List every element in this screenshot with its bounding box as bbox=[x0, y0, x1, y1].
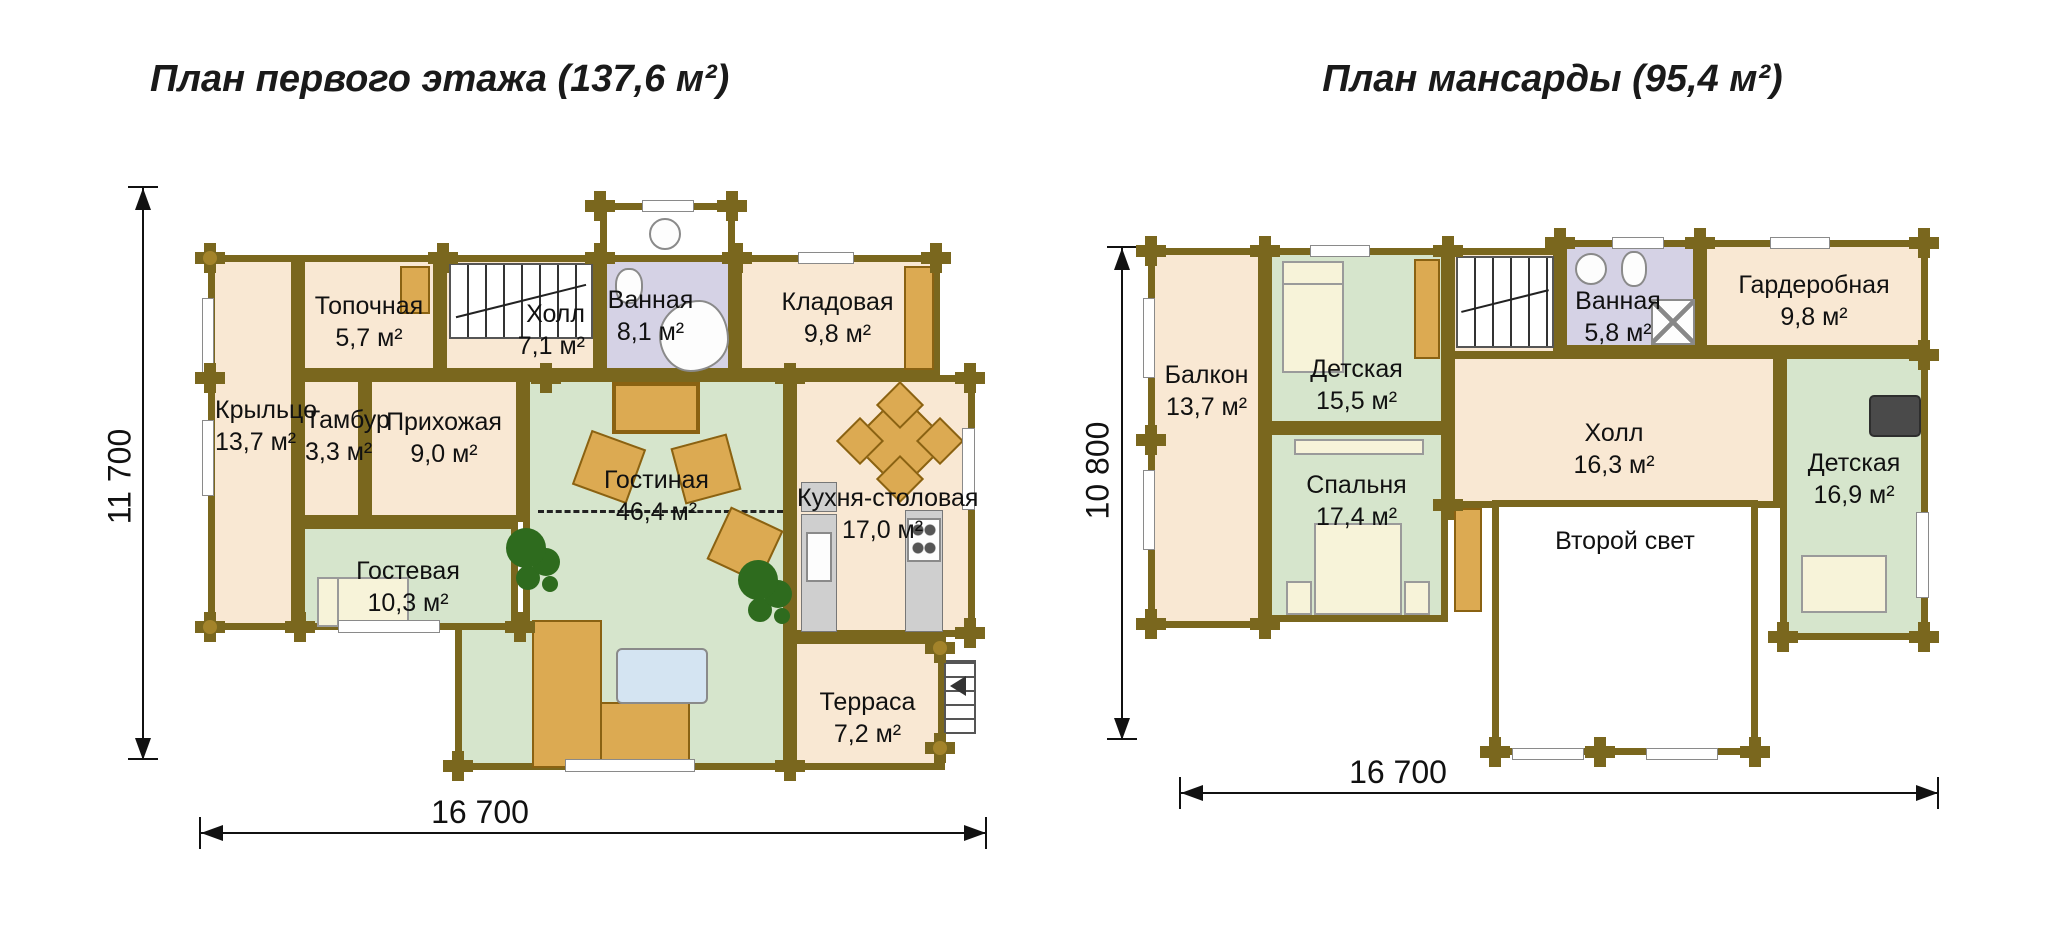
double-bed bbox=[1314, 523, 1402, 615]
room-vannaya-2: Ванная 5,8 м² bbox=[1560, 240, 1700, 352]
log-joint bbox=[1433, 236, 1463, 266]
log-joint bbox=[195, 612, 225, 642]
plant-icon bbox=[506, 528, 546, 568]
log-joint bbox=[717, 191, 747, 221]
height-dimension-label-right: 10 800 bbox=[1080, 411, 1117, 531]
log-joint bbox=[443, 751, 473, 781]
window bbox=[565, 759, 695, 772]
room-label-tambur: Тамбур 3,3 м² bbox=[305, 404, 358, 468]
log-joint bbox=[1909, 622, 1939, 652]
height-dimension-label-left: 11 700 bbox=[102, 417, 139, 537]
log-joint bbox=[1740, 737, 1770, 767]
log-joint bbox=[775, 751, 805, 781]
height-dimension-line-left bbox=[142, 188, 144, 760]
room-label-gostinaya: Гостиная 46,4 м² bbox=[530, 464, 783, 528]
plant-icon bbox=[738, 560, 778, 600]
log-joint bbox=[955, 618, 985, 648]
log-joint bbox=[1480, 737, 1510, 767]
log-joint bbox=[585, 243, 615, 273]
width-dimension-label-right: 16 700 bbox=[1318, 754, 1478, 791]
room-label-kryltso: Крыльцо 13,7 м² bbox=[215, 394, 291, 458]
room-label-vannaya-2: Ванная 5,8 м² bbox=[1567, 285, 1693, 349]
room-spalnya: Спальня 17,4 м² bbox=[1265, 428, 1448, 622]
wardrobe-strip bbox=[1414, 259, 1440, 359]
staircase-attic bbox=[1456, 256, 1554, 348]
height-dimension-line-right bbox=[1121, 248, 1123, 740]
washbasin-icon bbox=[649, 218, 681, 250]
room-label-topochnaya: Топочная 5,7 м² bbox=[305, 290, 433, 354]
dimension-arrow bbox=[1114, 248, 1130, 270]
room-label-detskaya-2: Детская 16,9 м² bbox=[1787, 447, 1921, 511]
fireplace bbox=[612, 382, 700, 434]
window bbox=[202, 420, 214, 496]
room-label-kuhnya: Кухня-столовая 17,0 м² bbox=[797, 482, 968, 546]
log-joint bbox=[1136, 425, 1166, 455]
room-vtoroy-svet: Второй свет bbox=[1492, 500, 1758, 755]
window bbox=[1143, 470, 1155, 550]
room-label-holl-1: Холл 7,1 м² bbox=[518, 298, 585, 362]
room-label-vannaya-1: Ванная 8,1 м² bbox=[607, 284, 728, 348]
width-dimension-line-left bbox=[200, 832, 986, 834]
log-joint bbox=[1909, 228, 1939, 258]
log-joint bbox=[195, 243, 225, 273]
log-joint bbox=[955, 363, 985, 393]
room-holl-2: Холл 16,3 м² bbox=[1448, 352, 1780, 508]
room-label-holl-2: Холл 16,3 м² bbox=[1455, 417, 1773, 481]
attic-plan: План мансарды (95,4 м²) Балкон 13,7 м² Д… bbox=[0, 0, 2061, 944]
stair-direction-line bbox=[1461, 289, 1549, 313]
log-joint bbox=[722, 243, 752, 273]
log-joint bbox=[775, 363, 805, 393]
window bbox=[1143, 298, 1155, 378]
room-label-kladovaya: Кладовая 9,8 м² bbox=[742, 286, 933, 350]
log-joint bbox=[195, 363, 225, 393]
room-label-detskaya-1: Детская 15,5 м² bbox=[1272, 353, 1441, 417]
room-label-garderobnaya: Гардеробная 9,8 м² bbox=[1707, 269, 1921, 333]
dimension-arrow bbox=[135, 188, 151, 210]
balcony-floor-strip bbox=[1454, 508, 1482, 612]
window bbox=[338, 620, 440, 633]
log-joint bbox=[1545, 228, 1575, 258]
log-joint bbox=[1909, 340, 1939, 370]
room-label-vtoroy-svet: Второй свет bbox=[1499, 525, 1751, 557]
steps-arrow-icon bbox=[950, 676, 966, 696]
width-dimension-line-right bbox=[1180, 792, 1938, 794]
log-joint bbox=[1685, 228, 1715, 258]
coffee-table bbox=[616, 648, 708, 704]
nightstand bbox=[1286, 581, 1312, 615]
log-joint bbox=[1250, 236, 1280, 266]
room-detskaya-2: Детская 16,9 м² bbox=[1780, 352, 1928, 640]
room-detskaya-1: Детская 15,5 м² bbox=[1265, 248, 1448, 428]
room-label-spalnya: Спальня 17,4 м² bbox=[1272, 469, 1441, 533]
window bbox=[1770, 237, 1830, 249]
room-garderobnaya: Гардеробная 9,8 м² bbox=[1700, 240, 1928, 352]
log-joint bbox=[531, 363, 561, 393]
terrace-steps bbox=[944, 660, 976, 734]
window bbox=[1916, 512, 1929, 598]
dimension-arrow bbox=[201, 825, 223, 841]
log-joint bbox=[925, 633, 955, 663]
washbasin-icon bbox=[1575, 253, 1607, 285]
dimension-arrow bbox=[1916, 785, 1938, 801]
window bbox=[1646, 748, 1718, 760]
window bbox=[1310, 245, 1370, 257]
dimension-arrow bbox=[1114, 718, 1130, 740]
dimension-arrow bbox=[135, 738, 151, 760]
window bbox=[1612, 237, 1664, 249]
nightstand bbox=[1404, 581, 1430, 615]
corner-sofa-horizontal bbox=[600, 702, 690, 766]
entrance-door bbox=[642, 200, 694, 212]
room-label-balkon: Балкон 13,7 м² bbox=[1155, 359, 1258, 423]
log-joint bbox=[921, 243, 951, 273]
attic-title: План мансарды (95,4 м²) bbox=[1280, 58, 1825, 101]
window bbox=[1512, 748, 1584, 760]
room-label-terrasa: Терраса 7,2 м² bbox=[797, 686, 938, 750]
child-bed-pillow bbox=[1282, 261, 1344, 285]
log-joint bbox=[1250, 609, 1280, 639]
desk-chair bbox=[1869, 395, 1921, 437]
log-joint bbox=[1136, 236, 1166, 266]
toilet-icon bbox=[1621, 251, 1647, 287]
log-joint bbox=[1136, 609, 1166, 639]
child-bed bbox=[1801, 555, 1887, 613]
room-label-gostevaya: Гостевая 10,3 м² bbox=[305, 555, 511, 619]
log-joint bbox=[1585, 737, 1615, 767]
dimension-arrow bbox=[1181, 785, 1203, 801]
width-dimension-label-left: 16 700 bbox=[400, 794, 560, 831]
dresser bbox=[1294, 439, 1424, 455]
corner-sofa-vertical bbox=[532, 620, 602, 768]
room-label-prihozhaya: Прихожая 9,0 м² bbox=[372, 406, 516, 470]
log-joint bbox=[1768, 622, 1798, 652]
dimension-arrow bbox=[964, 825, 986, 841]
window bbox=[798, 252, 854, 264]
log-joint bbox=[585, 191, 615, 221]
floor-plans-canvas: План первого этажа (137,6 м²) Гостиная 4… bbox=[0, 0, 2061, 944]
log-joint bbox=[428, 243, 458, 273]
